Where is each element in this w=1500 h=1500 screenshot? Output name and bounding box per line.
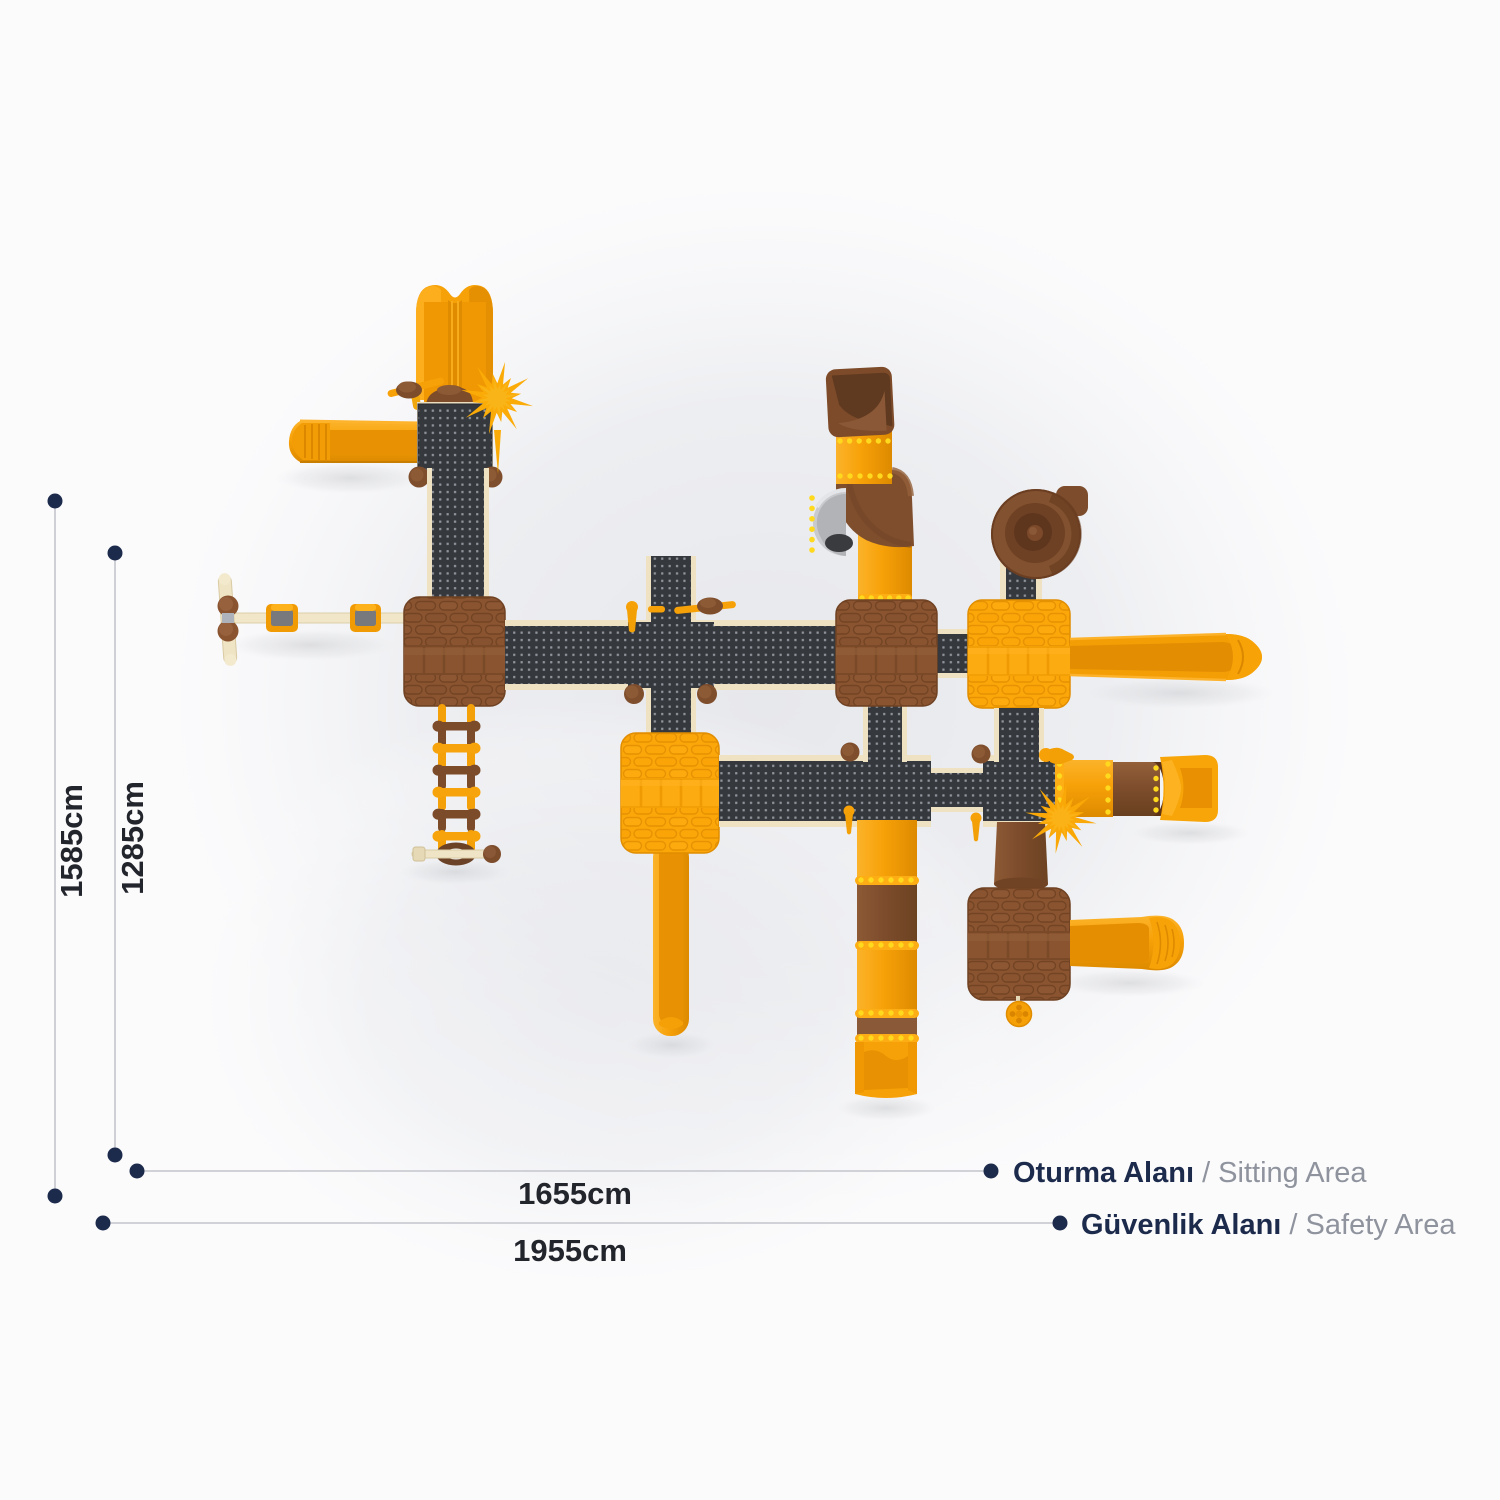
svg-text:1955cm: 1955cm xyxy=(513,1233,627,1268)
svg-text:1285cm: 1285cm xyxy=(115,781,150,895)
svg-text:Oturma Alanı / Sitting Area: Oturma Alanı / Sitting Area xyxy=(1013,1157,1367,1189)
svg-text:1585cm: 1585cm xyxy=(54,784,89,898)
svg-text:1655cm: 1655cm xyxy=(518,1176,632,1211)
svg-text:Güvenlik Alanı / Safety Area: Güvenlik Alanı / Safety Area xyxy=(1081,1209,1456,1241)
